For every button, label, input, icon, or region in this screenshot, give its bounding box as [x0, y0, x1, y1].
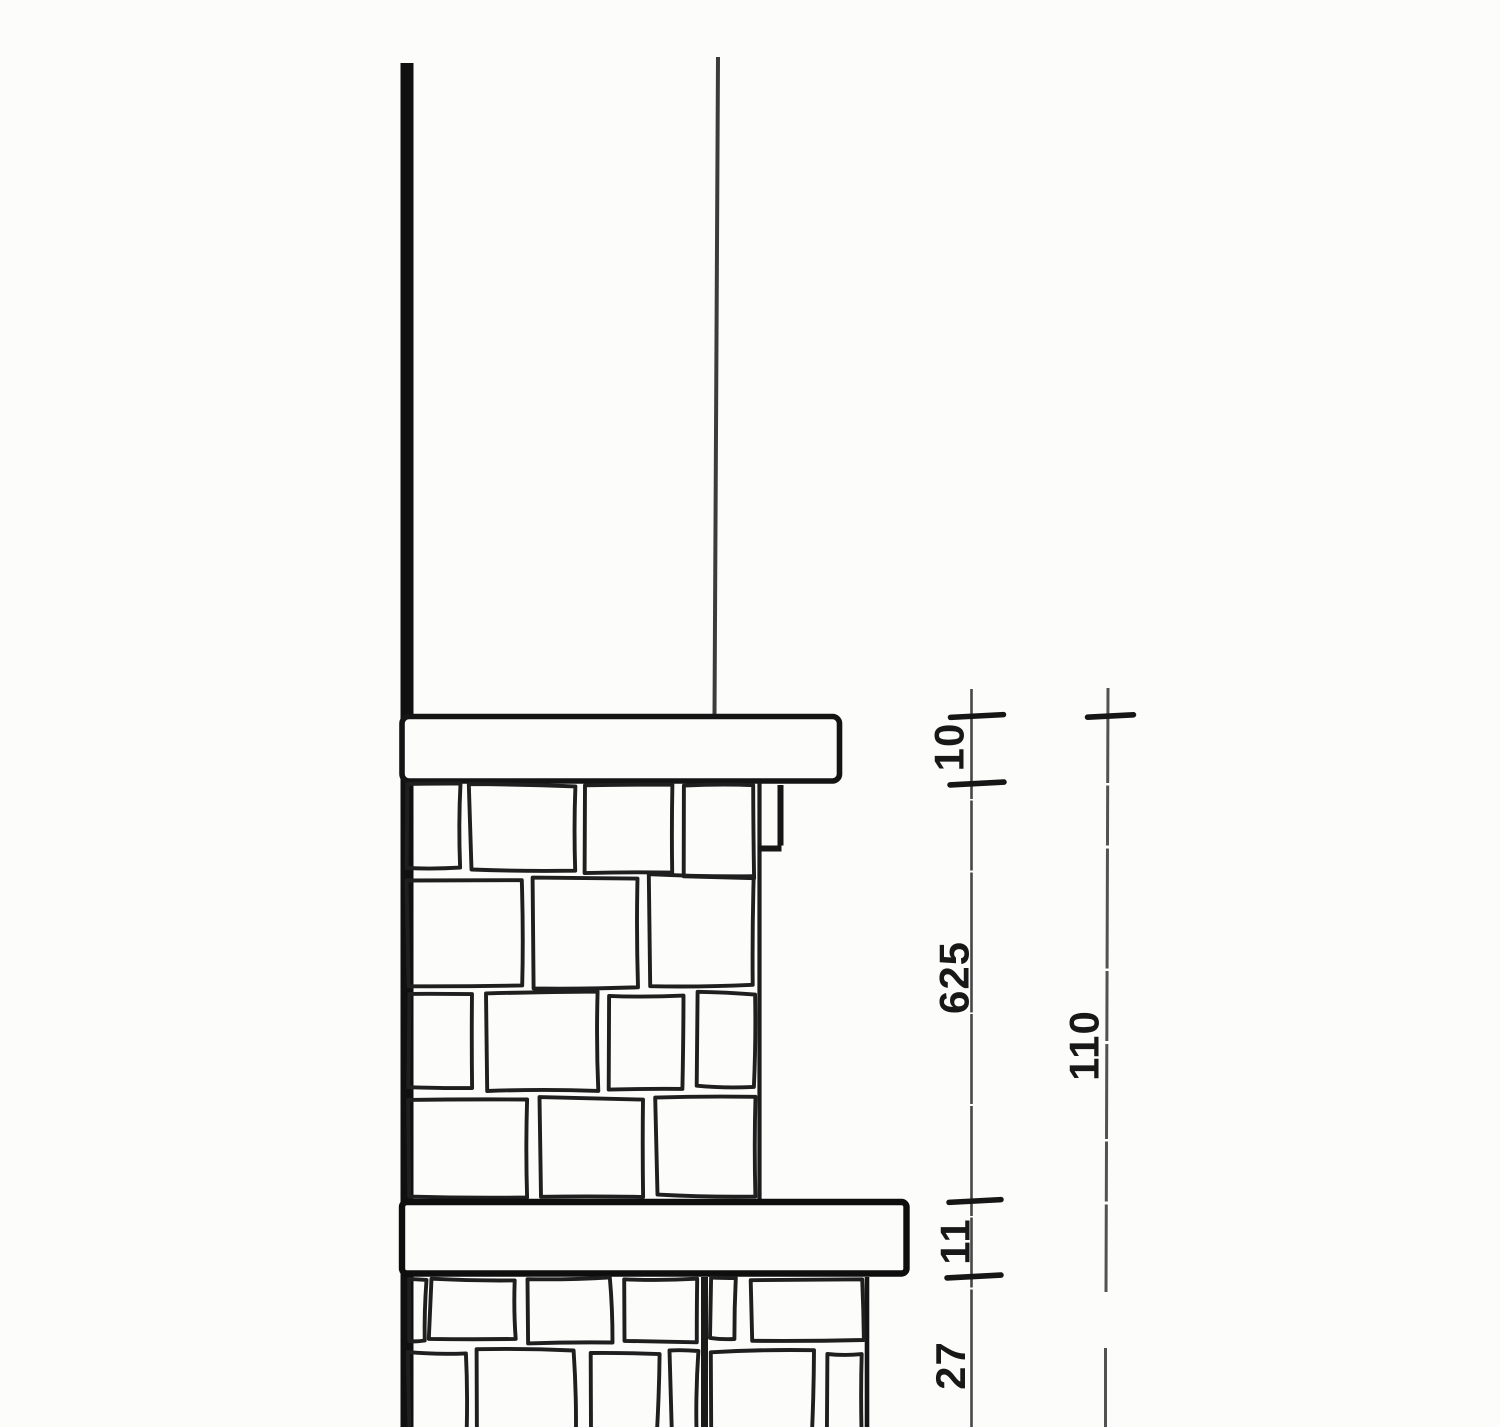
svg-text:110: 110 — [1061, 1010, 1108, 1081]
svg-text:625: 625 — [931, 941, 978, 1014]
svg-text:11: 11 — [932, 1218, 979, 1264]
svg-text:10: 10 — [926, 723, 973, 772]
svg-text:27: 27 — [927, 1341, 974, 1390]
